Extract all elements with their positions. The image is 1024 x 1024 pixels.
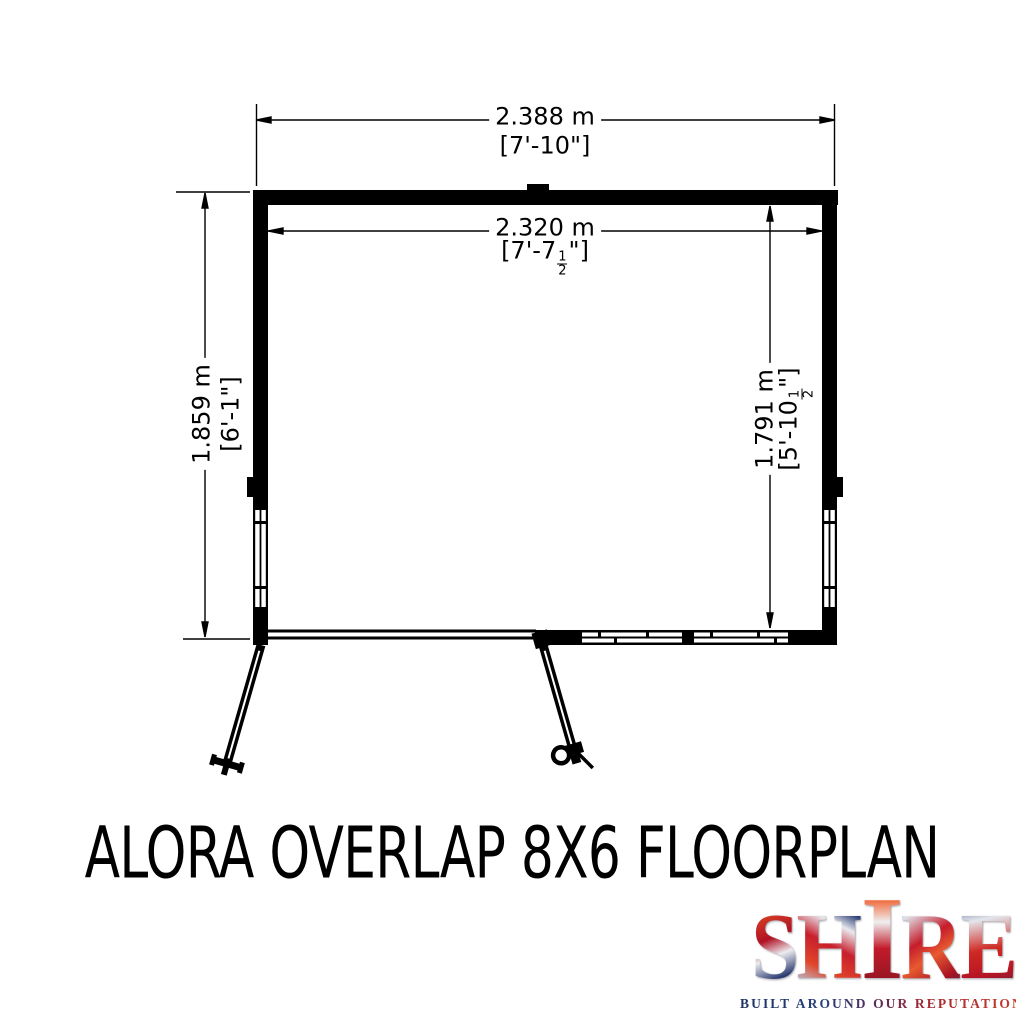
right-wall-tab (836, 477, 843, 497)
fraction-numerator: 1 (557, 251, 567, 265)
dim-inner-depth-imperial-post: "] (775, 367, 803, 387)
door-sill (266, 630, 536, 640)
dim-inner-width-imperial-pre: [7'-7 (501, 237, 556, 265)
logo-letter: R (901, 895, 961, 999)
front-window-left-upper (582, 633, 682, 637)
page-title: ALORA OVERLAP 8X6 FLOORPLAN (85, 812, 940, 895)
logo-letter: S (751, 895, 796, 999)
fraction-denominator: 2 (803, 390, 816, 398)
fraction: 12 (557, 251, 567, 278)
right-window (824, 510, 835, 607)
fraction-denominator: 2 (558, 265, 566, 278)
right-door-knob-ring (551, 745, 571, 765)
dim-outer-width-metric: 2.388 m (489, 104, 601, 129)
front-window-right-upper (694, 633, 788, 637)
left-door-leaf (207, 640, 277, 779)
shire-logo: SHIRE BUILT AROUND OUR REPUTATION (740, 884, 1016, 1012)
page: 2.388 m [7'-10"] 2.320 m [7'-712"] 1.859… (0, 0, 1024, 1024)
door-sill-inner-line (266, 637, 536, 640)
dim-inner-depth-imperial-pre: [5'-10 (775, 400, 803, 470)
top-wall-tab (527, 184, 549, 191)
arrowhead-inner-depth-top (767, 206, 773, 221)
logo-letter: E (960, 895, 1015, 999)
shire-wordmark: SHIRE (751, 884, 1005, 993)
right-door-leaf (519, 628, 593, 778)
dim-outer-depth-imperial: [6'-1"] (218, 370, 243, 458)
arrowhead-depth-bottom (202, 622, 208, 637)
dim-inner-depth-imperial: [5'-1012"] (777, 361, 816, 476)
logo-letter: I (861, 872, 901, 1004)
logo-letter: H (796, 895, 861, 999)
dimension-lines (176, 104, 835, 639)
left-door-handle-stub (221, 765, 229, 775)
front-window-left-lower (582, 639, 682, 643)
dim-outer-width-imperial: [7'-10"] (494, 133, 597, 158)
left-door-panel-line (228, 650, 261, 758)
door-sill-outer-line (266, 630, 536, 633)
arrowhead-inner-right (807, 228, 822, 234)
dim-outer-depth-metric: 1.859 m (189, 358, 214, 470)
fraction-numerator: 1 (789, 389, 803, 399)
arrowhead-depth-top (202, 193, 208, 208)
arrowhead-left (256, 117, 271, 123)
arrowhead-right (820, 117, 835, 123)
right-door-panel-line (544, 650, 576, 754)
top-wall (253, 190, 838, 205)
arrowhead-inner-depth-bottom (767, 613, 773, 628)
left-wall-tab (247, 477, 254, 497)
dim-inner-width-imperial-post: "] (569, 237, 589, 265)
front-wall-right-section (535, 630, 837, 645)
left-window (255, 510, 266, 607)
front-window-right-lower (694, 639, 788, 643)
dim-inner-width-imperial: [7'-712"] (495, 239, 595, 278)
fraction: 12 (789, 389, 816, 399)
arrowhead-inner-left (268, 228, 283, 234)
